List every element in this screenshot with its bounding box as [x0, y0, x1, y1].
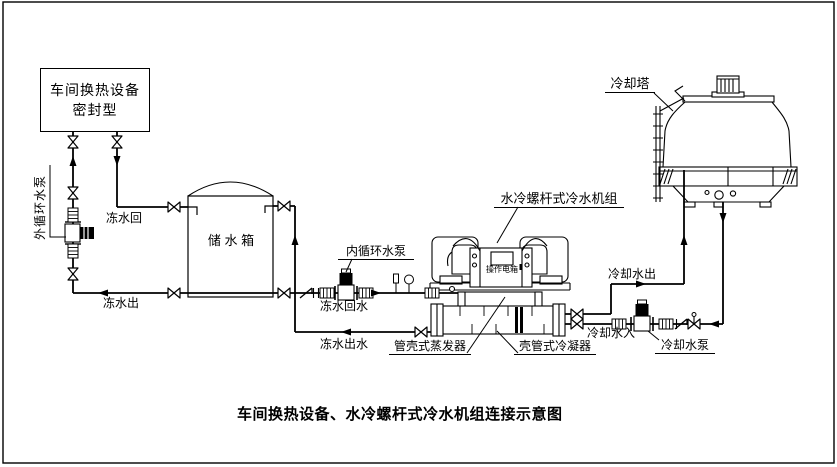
flex-connector-icon	[68, 208, 78, 222]
chilled-out-label: 冻水出	[103, 297, 139, 310]
cooling-water-out-label: 冷却水出	[608, 268, 656, 281]
condenser-shell	[443, 306, 553, 334]
cooling-tower-label: 冷却塔	[605, 77, 655, 93]
condenser-label: 壳管式冷凝器	[514, 340, 596, 355]
valve-icon	[168, 202, 180, 212]
fittings	[68, 208, 687, 329]
piping-lines	[73, 130, 723, 332]
flex-connector-icon	[425, 288, 439, 298]
flex-connector-icon	[320, 288, 334, 298]
flow-arrow-icon	[341, 329, 351, 336]
valve-icon	[68, 136, 78, 148]
flow-arrow-icon	[681, 235, 688, 245]
valve-icon	[688, 313, 700, 330]
cooling-tower	[653, 76, 797, 207]
workshop-equipment-box: 车间换热设备 密封型	[40, 68, 150, 132]
valves	[68, 136, 700, 337]
workshop-box-line1: 车间换热设备	[50, 80, 140, 100]
schematic-page: 车间换热设备 密封型 外循环水泵 冻水回 冻水出 储 水 箱 内循环水泵 冻水回…	[0, 0, 837, 467]
internal-pump-icon	[335, 269, 357, 300]
evaporator-label: 管壳式蒸发器	[389, 340, 471, 355]
flow-arrow-icon	[709, 321, 719, 328]
valve-icon	[278, 288, 290, 298]
valve-icon	[415, 327, 427, 337]
tower-fan-motor	[717, 76, 739, 93]
external-pump-label: 外循环水泵	[31, 175, 48, 240]
valve-icon	[112, 136, 122, 148]
workshop-box-line2: 密封型	[73, 100, 118, 120]
flex-connector-icon	[359, 288, 373, 298]
valve-icon	[278, 201, 290, 211]
tower-basin	[659, 167, 797, 207]
flex-connector-icon	[68, 244, 78, 258]
external-pump	[65, 222, 94, 244]
thermometer-icon	[394, 274, 399, 293]
valve-icon	[571, 309, 583, 319]
valve-icon	[168, 288, 180, 298]
flow-arrow-icon	[371, 290, 381, 297]
heat-exchangers	[431, 287, 565, 337]
valve-icon	[68, 187, 78, 199]
pressure-gauge-icon	[405, 275, 414, 293]
internal-pump-label: 内循环水泵	[338, 245, 414, 260]
chilled-return-label: 冻水回	[106, 212, 142, 225]
flow-arrow-icon	[70, 156, 77, 166]
flow-arrow-icon	[720, 213, 727, 223]
flow-arrow-icon	[636, 281, 646, 288]
flow-arrow-icon	[114, 156, 121, 166]
diagram-caption: 车间换热设备、水冷螺杆式冷水机组连接示意图	[237, 407, 563, 424]
chiller-unit-label: 水冷螺杆式冷水机组	[494, 192, 624, 208]
chilled-return-water-label: 冻水回水	[320, 300, 368, 313]
cooling-water-in-label: 冷却水入	[587, 327, 635, 340]
chilled-out-water-label: 冻水出水	[320, 338, 368, 351]
control-box-label: 操作电箱	[482, 266, 522, 275]
cooling-pump-label: 冷却水泵	[655, 339, 715, 354]
valve-icon	[571, 319, 583, 329]
storage-tank-label: 储 水 箱	[190, 234, 272, 248]
flex-connector-icon	[659, 319, 673, 329]
chiller-unit	[430, 237, 570, 290]
valve-icon	[68, 268, 78, 280]
flow-arrow-icon	[292, 235, 299, 245]
